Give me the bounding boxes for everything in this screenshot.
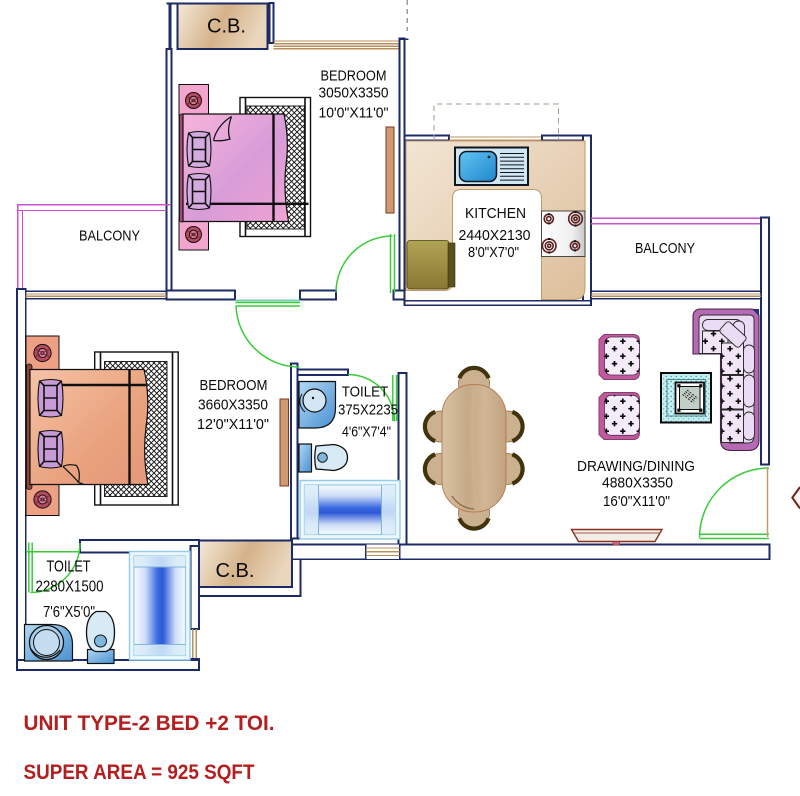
svg-text:TOILET: TOILET xyxy=(47,559,91,576)
svg-text:KITCHEN: KITCHEN xyxy=(465,205,526,222)
svg-text:3050X3350: 3050X3350 xyxy=(319,85,389,102)
svg-text:UNIT TYPE-2 BED +2 TOI.: UNIT TYPE-2 BED +2 TOI. xyxy=(24,711,275,735)
svg-text:C.B.: C.B. xyxy=(216,559,255,582)
svg-text:BEDROOM: BEDROOM xyxy=(321,68,387,85)
svg-text:C.B.: C.B. xyxy=(207,15,246,38)
svg-text:375X2235: 375X2235 xyxy=(338,402,398,419)
svg-text:4'6"X7'4": 4'6"X7'4" xyxy=(342,424,391,441)
svg-text:BALCONY: BALCONY xyxy=(635,240,695,257)
svg-text:3660X3350: 3660X3350 xyxy=(198,397,268,414)
svg-text:TOILET: TOILET xyxy=(342,384,389,401)
svg-text:2280X1500: 2280X1500 xyxy=(36,579,104,596)
svg-text:12'0"X11'0": 12'0"X11'0" xyxy=(197,416,269,433)
svg-text:DRAWING/DINING: DRAWING/DINING xyxy=(577,458,695,475)
svg-text:7'6"X5'0": 7'6"X5'0" xyxy=(43,604,95,621)
svg-text:10'0"X11'0": 10'0"X11'0" xyxy=(319,105,389,122)
svg-text:4880X3350: 4880X3350 xyxy=(602,475,673,492)
svg-text:SUPER AREA = 925 SQFT: SUPER AREA = 925 SQFT xyxy=(24,760,255,784)
svg-text:BEDROOM: BEDROOM xyxy=(200,377,268,394)
svg-text:16'0"X11'0": 16'0"X11'0" xyxy=(603,493,670,510)
svg-text:2440X2130: 2440X2130 xyxy=(459,227,531,244)
svg-text:BALCONY: BALCONY xyxy=(79,228,140,245)
svg-text:8'0"X7'0": 8'0"X7'0" xyxy=(468,244,519,261)
